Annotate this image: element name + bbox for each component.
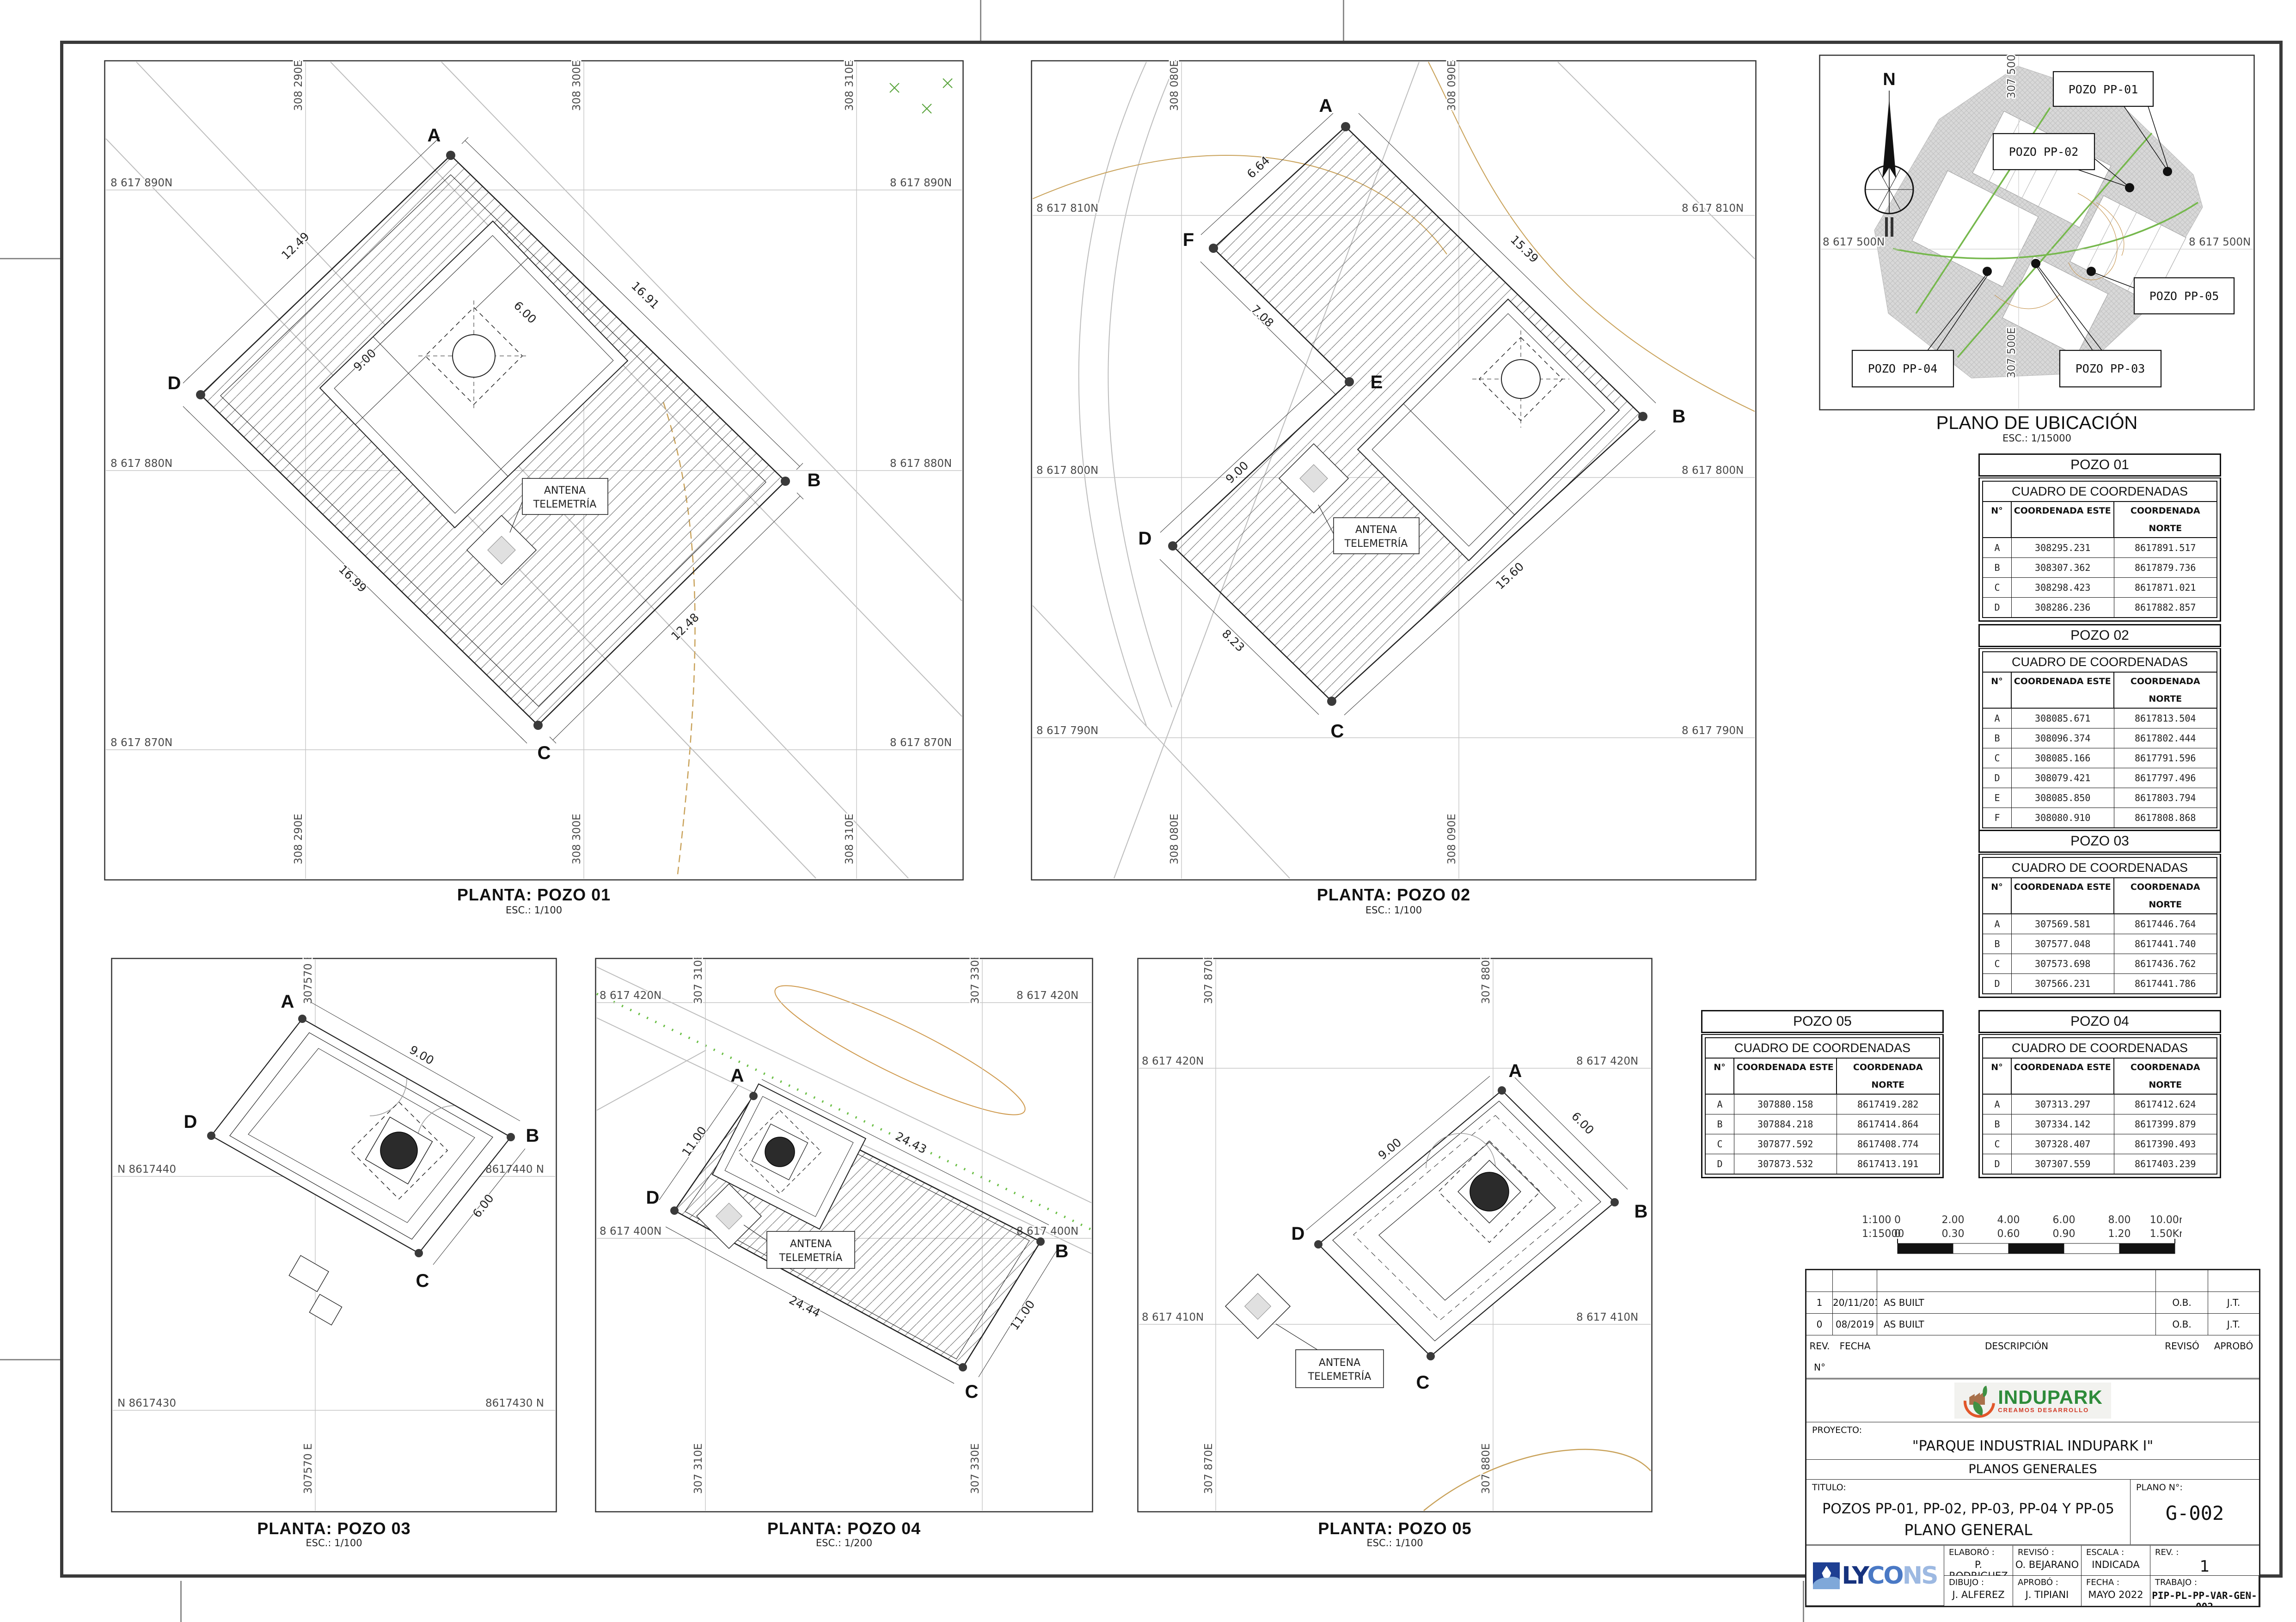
plan-pozo-03: 307570 E 307570 E N 8617440 N 8617430 86… <box>111 958 557 1512</box>
rev-num: 1 <box>1806 1292 1833 1314</box>
pozo-label-pp05: POZO PP-05 <box>2134 278 2234 314</box>
grid-label: 307570 E <box>302 958 314 1004</box>
rev-reviso: O.B. <box>2156 1314 2208 1335</box>
plan-title-pozo-03: PLANTA: POZO 03 <box>111 1519 557 1538</box>
svg-text:ANTENA: ANTENA <box>790 1238 832 1250</box>
table-row: D307873.5328617413.191 <box>1706 1154 1939 1174</box>
revision-table: 1 20/11/2019 AS BUILT O.B. J.T. 0 08/201… <box>1806 1270 2259 1379</box>
table-row: A307880.1588617419.282 <box>1706 1095 1939 1114</box>
table-row: D307566.2318617441.786 <box>1983 974 2216 993</box>
plan-scale-pozo-01: ESC.: 1/100 <box>104 905 964 916</box>
vertex-label: D <box>168 373 181 393</box>
grid-label: 8 617 500N <box>2189 236 2251 248</box>
fold-mark <box>1803 1581 1804 1622</box>
grid-label: 308 080E <box>1169 814 1181 864</box>
lycons-icon <box>1813 1562 1840 1589</box>
grid-label: 308 290E <box>293 60 305 111</box>
table-title: POZO 02 <box>1978 624 2221 647</box>
svg-text:TELEMETRÍA: TELEMETRÍA <box>1308 1371 1371 1383</box>
pozo-label-pp02: POZO PP-02 <box>1993 134 2094 170</box>
grid-label: 307 310E <box>692 958 704 1004</box>
plan-pozo-05: 307 870E 307 880E 307 870E 307 880E 8 61… <box>1137 958 1653 1512</box>
field-elaboro: ELABORÓ : P. RODRIGUEZ <box>1944 1546 2013 1576</box>
vertex-label: A <box>428 125 441 146</box>
sheet-number-cell: PLANO N°: G-002 <box>2131 1480 2259 1544</box>
grid-label: 308 300E <box>571 814 583 864</box>
plan-title-pozo-01: PLANTA: POZO 01 <box>104 885 964 905</box>
vertex-label: D <box>1139 528 1152 549</box>
sheet-title-line2: PLANO GENERAL <box>1806 1521 2130 1539</box>
grid-label: 8 617 810N <box>1682 202 1744 214</box>
fold-mark <box>1343 0 1344 41</box>
svg-text:0: 0 <box>1894 1228 1901 1240</box>
table-subtitle: CUADRO DE COORDENADAS <box>1983 858 2216 878</box>
svg-text:ANTENA: ANTENA <box>1355 524 1397 536</box>
svg-text:N: N <box>1883 70 1895 89</box>
coordinate-table-pozo-02: POZO 02 CUADRO DE COORDENADAS N°COORDENA… <box>1978 624 2221 832</box>
location-plan: 8 617 500N 8 617 500N 307 500E 307 500E … <box>1819 55 2255 410</box>
table-row: A307313.2978617412.624 <box>1983 1095 2216 1114</box>
rev-date: 20/11/2019 <box>1833 1292 1877 1314</box>
table-row: C308298.4238617871.021 <box>1983 578 2216 598</box>
grid-label: 307 870E <box>1203 958 1215 1004</box>
vertex-label: E <box>1371 372 1383 392</box>
grid-label: 8617440 N <box>485 1163 544 1175</box>
table-title: POZO 05 <box>1701 1010 1944 1033</box>
project-cell: PROYECTO: "PARQUE INDUSTRIAL INDUPARK I" <box>1806 1422 2259 1460</box>
antenna-label: ANTENA TELEMETRÍA <box>767 1231 855 1268</box>
grid-label: 8 617 810N <box>1036 202 1098 214</box>
location-plan-scale: ESC.: 1/15000 <box>1819 433 2255 444</box>
field-escala: ESCALA : INDICADA <box>2082 1546 2150 1576</box>
pozo-label-pp01: POZO PP-01 <box>2053 72 2153 106</box>
grid-label: 8617430 N <box>485 1397 544 1409</box>
table-header: N°COORDENADA ESTECOORDENADA NORTE <box>1983 878 2216 914</box>
grid-label: 8 617 890N <box>110 177 172 189</box>
grid-label: 8 617 800N <box>1682 465 1744 477</box>
pozo-label-pp04: POZO PP-04 <box>1852 350 1953 387</box>
plan-pozo-02: 308 080E 308 090E 308 080E 308 090E 8 61… <box>1031 60 1757 881</box>
table-header: N°COORDENADA ESTECOORDENADA NORTE <box>1983 1059 2216 1095</box>
grid-label: 8 617 870N <box>890 737 952 749</box>
table-row: C307877.5928617408.774 <box>1706 1134 1939 1154</box>
scale-bar: 1:100 1:15000 0 2.00 4.00 6.00 8.00 10.0… <box>1849 1212 2182 1263</box>
grid-label: 308 080E <box>1169 60 1181 111</box>
svg-text:POZO PP-03: POZO PP-03 <box>2076 362 2145 375</box>
field-rev: REV. : 1 <box>2150 1546 2259 1576</box>
table-row: E308085.8508617803.794 <box>1983 788 2216 808</box>
vertex-label: F <box>1183 230 1194 250</box>
vertex-label: B <box>1635 1201 1648 1222</box>
grid-label: 8 617 880N <box>110 458 172 470</box>
plan-pozo-04: 307 310E 307 330E 307 310E 307 330E 8 61… <box>595 958 1093 1512</box>
plan-title-pozo-04: PLANTA: POZO 04 <box>595 1519 1093 1538</box>
coordinate-table-pozo-04: POZO 04 CUADRO DE COORDENADAS N°COORDENA… <box>1978 1010 2221 1178</box>
svg-text:TELEMETRÍA: TELEMETRÍA <box>533 498 597 510</box>
rev-num: 0 <box>1806 1314 1833 1335</box>
table-row: D308286.2368617882.857 <box>1983 598 2216 617</box>
table-row: F308080.9108617808.868 <box>1983 808 2216 827</box>
grid-label: 8 617 420N <box>600 990 661 1002</box>
antenna-label: ANTENA TELEMETRÍA <box>1334 518 1419 554</box>
svg-text:10.00m: 10.00m <box>2150 1214 2182 1226</box>
well-circle <box>453 335 495 377</box>
svg-text:1.20: 1.20 <box>2108 1228 2131 1240</box>
svg-text:POZO PP-05: POZO PP-05 <box>2149 289 2219 303</box>
svg-text:TELEMETRÍA: TELEMETRÍA <box>1344 538 1408 550</box>
vertex-label: D <box>184 1112 197 1132</box>
grid-label: N 8617430 <box>117 1397 176 1409</box>
grid-label: 307 500E <box>2006 327 2018 378</box>
antenna-label: ANTENA TELEMETRÍA <box>522 478 608 514</box>
table-header: N°COORDENADA ESTECOORDENADA NORTE <box>1706 1059 1939 1095</box>
table-header: N°COORDENADA ESTECOORDENADA NORTE <box>1983 502 2216 538</box>
vertex-label: C <box>965 1382 979 1402</box>
grid-label: 307570 E <box>302 1443 314 1494</box>
indupark-logo: INDUPARK CREAMOS DESARROLLO <box>1954 1383 2111 1419</box>
brand-tagline: CREAMOS DESARROLLO <box>1998 1407 2103 1414</box>
svg-text:4.00: 4.00 <box>1997 1214 2020 1226</box>
vertex-label: D <box>646 1187 660 1208</box>
fold-mark <box>0 1359 60 1360</box>
grid-label: 8 617 870N <box>110 737 172 749</box>
sheet-title-line1: POZOS PP-01, PP-02, PP-03, PP-04 Y PP-05 <box>1806 1501 2130 1517</box>
rev-desc: AS BUILT <box>1877 1314 2156 1335</box>
table-subtitle: CUADRO DE COORDENADAS <box>1706 1038 1939 1059</box>
coordinate-table-pozo-05: POZO 05 CUADRO DE COORDENADAS N°COORDENA… <box>1701 1010 1944 1178</box>
table-subtitle: CUADRO DE COORDENADAS <box>1983 652 2216 673</box>
table-row: C308085.1668617791.596 <box>1983 748 2216 768</box>
grid-label: 8 617 790N <box>1682 725 1744 737</box>
table-subtitle: CUADRO DE COORDENADAS <box>1983 1038 2216 1059</box>
grid-label: 8 617 790N <box>1036 725 1098 737</box>
grid-label: 308 090E <box>1446 814 1458 864</box>
scale-ratio: 1:100 <box>1862 1214 1891 1226</box>
brand-name: INDUPARK <box>1998 1388 2103 1407</box>
sheet-number-label: PLANO N°: <box>2131 1480 2259 1493</box>
grid-label: 308 310E <box>844 60 856 111</box>
field-fecha: FECHA : MAYO 2022 <box>2082 1576 2150 1606</box>
svg-text:ANTENA: ANTENA <box>544 485 586 496</box>
table-title: POZO 03 <box>1978 830 2221 853</box>
grid-label: 307 330E <box>969 1443 981 1494</box>
table-row: A308295.2318617891.517 <box>1983 538 2216 558</box>
table-row: D308079.4218617797.496 <box>1983 768 2216 788</box>
plan-scale-pozo-04: ESC.: 1/200 <box>595 1537 1093 1549</box>
svg-text:POZO PP-01: POZO PP-01 <box>2069 83 2138 96</box>
plan-scale-pozo-02: ESC.: 1/100 <box>1031 905 1757 916</box>
vertex-label: C <box>416 1271 429 1291</box>
section-title: PLANOS GENERALES <box>1806 1460 2259 1480</box>
table-row: C307573.6988617436.762 <box>1983 954 2216 974</box>
table-row: A307569.5818617446.764 <box>1983 914 2216 934</box>
svg-text:0.90: 0.90 <box>2053 1228 2076 1240</box>
well-circle <box>380 1132 417 1169</box>
plan-scale-pozo-05: ESC.: 1/100 <box>1137 1537 1653 1549</box>
pozo-label-pp03: POZO PP-03 <box>2060 350 2161 387</box>
rev-reviso: O.B. <box>2156 1292 2208 1314</box>
rev-aprobo: J.T. <box>2208 1314 2259 1335</box>
plan-title-pozo-02: PLANTA: POZO 02 <box>1031 885 1757 905</box>
svg-text:8.00: 8.00 <box>2108 1214 2131 1226</box>
svg-text:1.50Km: 1.50Km <box>2150 1228 2182 1240</box>
grid-label: 307 310E <box>692 1443 704 1494</box>
vertex-label: A <box>1319 96 1333 116</box>
table-subtitle: CUADRO DE COORDENADAS <box>1983 482 2216 502</box>
svg-text:6.00: 6.00 <box>2053 1214 2076 1226</box>
rev-aprobo: J.T. <box>2208 1292 2259 1314</box>
well-circle <box>1470 1172 1509 1211</box>
vertex-label: C <box>1416 1372 1430 1393</box>
table-row: B307884.2188617414.864 <box>1706 1114 1939 1134</box>
project-name: "PARQUE INDUSTRIAL INDUPARK I" <box>1806 1438 2259 1454</box>
grid-label: 8 617 420N <box>1142 1055 1204 1067</box>
rev-desc: AS BUILT <box>1877 1292 2156 1314</box>
grid-label: 8 617 410N <box>1576 1311 1638 1323</box>
grid-label: 308 300E <box>571 60 583 111</box>
coordinate-table-pozo-01: POZO 01 CUADRO DE COORDENADAS N°COORDENA… <box>1978 453 2221 622</box>
project-label: PROYECTO: <box>1806 1422 2259 1435</box>
vertex-label: B <box>526 1126 539 1146</box>
lycons-logo: LYCONS <box>1806 1546 1944 1606</box>
fold-mark <box>180 1581 182 1622</box>
vertex-label: C <box>538 743 551 763</box>
svg-text:0.60: 0.60 <box>1997 1228 2020 1240</box>
scale-bar-segments <box>1898 1239 2175 1254</box>
table-header: N°COORDENADA ESTECOORDENADA NORTE <box>1983 673 2216 709</box>
svg-text:2.00: 2.00 <box>1942 1214 1965 1226</box>
grid-label: 307 500E <box>2006 55 2018 98</box>
fold-mark <box>0 258 60 259</box>
field-dibujo: DIBUJO : J. ALFEREZ <box>1944 1576 2013 1606</box>
sheet-number: G-002 <box>2131 1502 2259 1524</box>
grid-label: 8 617 420N <box>1016 990 1078 1002</box>
title-label: TITULO: <box>1806 1480 2130 1493</box>
grid-label: 307 870E <box>1203 1443 1215 1494</box>
table-row: D307307.5598617403.239 <box>1983 1154 2216 1174</box>
vertex-label: A <box>731 1065 744 1086</box>
table-row: B307334.1428617399.879 <box>1983 1114 2216 1134</box>
grid-label: 8 617 890N <box>890 177 952 189</box>
svg-text:0.30: 0.30 <box>1942 1228 1965 1240</box>
svg-text:ANTENA: ANTENA <box>1319 1357 1360 1369</box>
grid-label: N 8617440 <box>117 1163 176 1175</box>
svg-text:0: 0 <box>1894 1214 1901 1226</box>
vertex-label: A <box>1509 1061 1522 1081</box>
plan-title-pozo-05: PLANTA: POZO 05 <box>1137 1519 1653 1538</box>
vertex-label: B <box>1055 1241 1069 1261</box>
field-aprobo: APROBÓ : J. TIPIANI <box>2013 1576 2082 1606</box>
svg-text:POZO PP-02: POZO PP-02 <box>2009 145 2079 159</box>
grid-label: 307 880E <box>1480 1443 1492 1494</box>
grid-label: 8 617 400N <box>600 1225 661 1237</box>
rev-date: 08/2019 <box>1833 1314 1877 1335</box>
svg-text:TELEMETRÍA: TELEMETRÍA <box>779 1252 843 1264</box>
table-title: POZO 04 <box>1978 1010 2221 1033</box>
title-block: 1 20/11/2019 AS BUILT O.B. J.T. 0 08/201… <box>1805 1269 2260 1607</box>
table-row: C307328.4078617390.493 <box>1983 1134 2216 1154</box>
vertex-label: B <box>808 470 821 490</box>
coordinate-table-pozo-03: POZO 03 CUADRO DE COORDENADAS N°COORDENA… <box>1978 830 2221 998</box>
grid-label: 307 880E <box>1480 958 1492 1004</box>
field-reviso: REVISÓ : O. BEJARANO <box>2013 1546 2082 1576</box>
grid-label: 8 617 500N <box>1823 236 1885 248</box>
vertex-label: B <box>1672 406 1686 427</box>
antenna-label: ANTENA TELEMETRÍA <box>1296 1350 1384 1388</box>
table-row: B308096.3748617802.444 <box>1983 728 2216 748</box>
grid-label: 8 617 800N <box>1036 465 1098 477</box>
plan-pozo-01: 308 290E 308 300E 308 310E 308 290E 308 … <box>104 60 964 881</box>
location-plan-title: PLANO DE UBICACIÓN <box>1819 413 2255 434</box>
well-circle <box>765 1137 795 1167</box>
table-title: POZO 01 <box>1978 453 2221 477</box>
grid-label: 8 617 410N <box>1142 1311 1204 1323</box>
vertex-label: A <box>281 992 294 1012</box>
indupark-icon <box>1963 1385 1993 1416</box>
drawing-sheet: 308 290E 308 300E 308 310E 308 290E 308 … <box>0 0 2296 1622</box>
grid-label: 308 090E <box>1446 60 1458 111</box>
vertex-label: C <box>1331 721 1344 741</box>
vertex-label: D <box>1292 1224 1305 1244</box>
title-cell: TITULO: POZOS PP-01, PP-02, PP-03, PP-04… <box>1806 1480 2131 1544</box>
svg-text:POZO PP-04: POZO PP-04 <box>1868 362 1938 375</box>
grid-label: 8 617 880N <box>890 458 952 470</box>
field-trabajo: TRABAJO : PIP-PL-PP-VAR-GEN-002 <box>2150 1576 2259 1606</box>
grid-label: 308 310E <box>844 814 856 864</box>
plan-scale-pozo-03: ESC.: 1/100 <box>111 1537 557 1549</box>
table-row: B308307.3628617879.736 <box>1983 558 2216 578</box>
table-row: B307577.0488617441.740 <box>1983 934 2216 954</box>
fold-mark <box>980 0 981 41</box>
grid-label: 307 330E <box>969 958 981 1004</box>
table-row: A308085.6718617813.504 <box>1983 709 2216 728</box>
well-circle <box>1501 360 1540 398</box>
grid-label: 8 617 420N <box>1576 1055 1638 1067</box>
grid-label: 308 290E <box>293 814 305 864</box>
